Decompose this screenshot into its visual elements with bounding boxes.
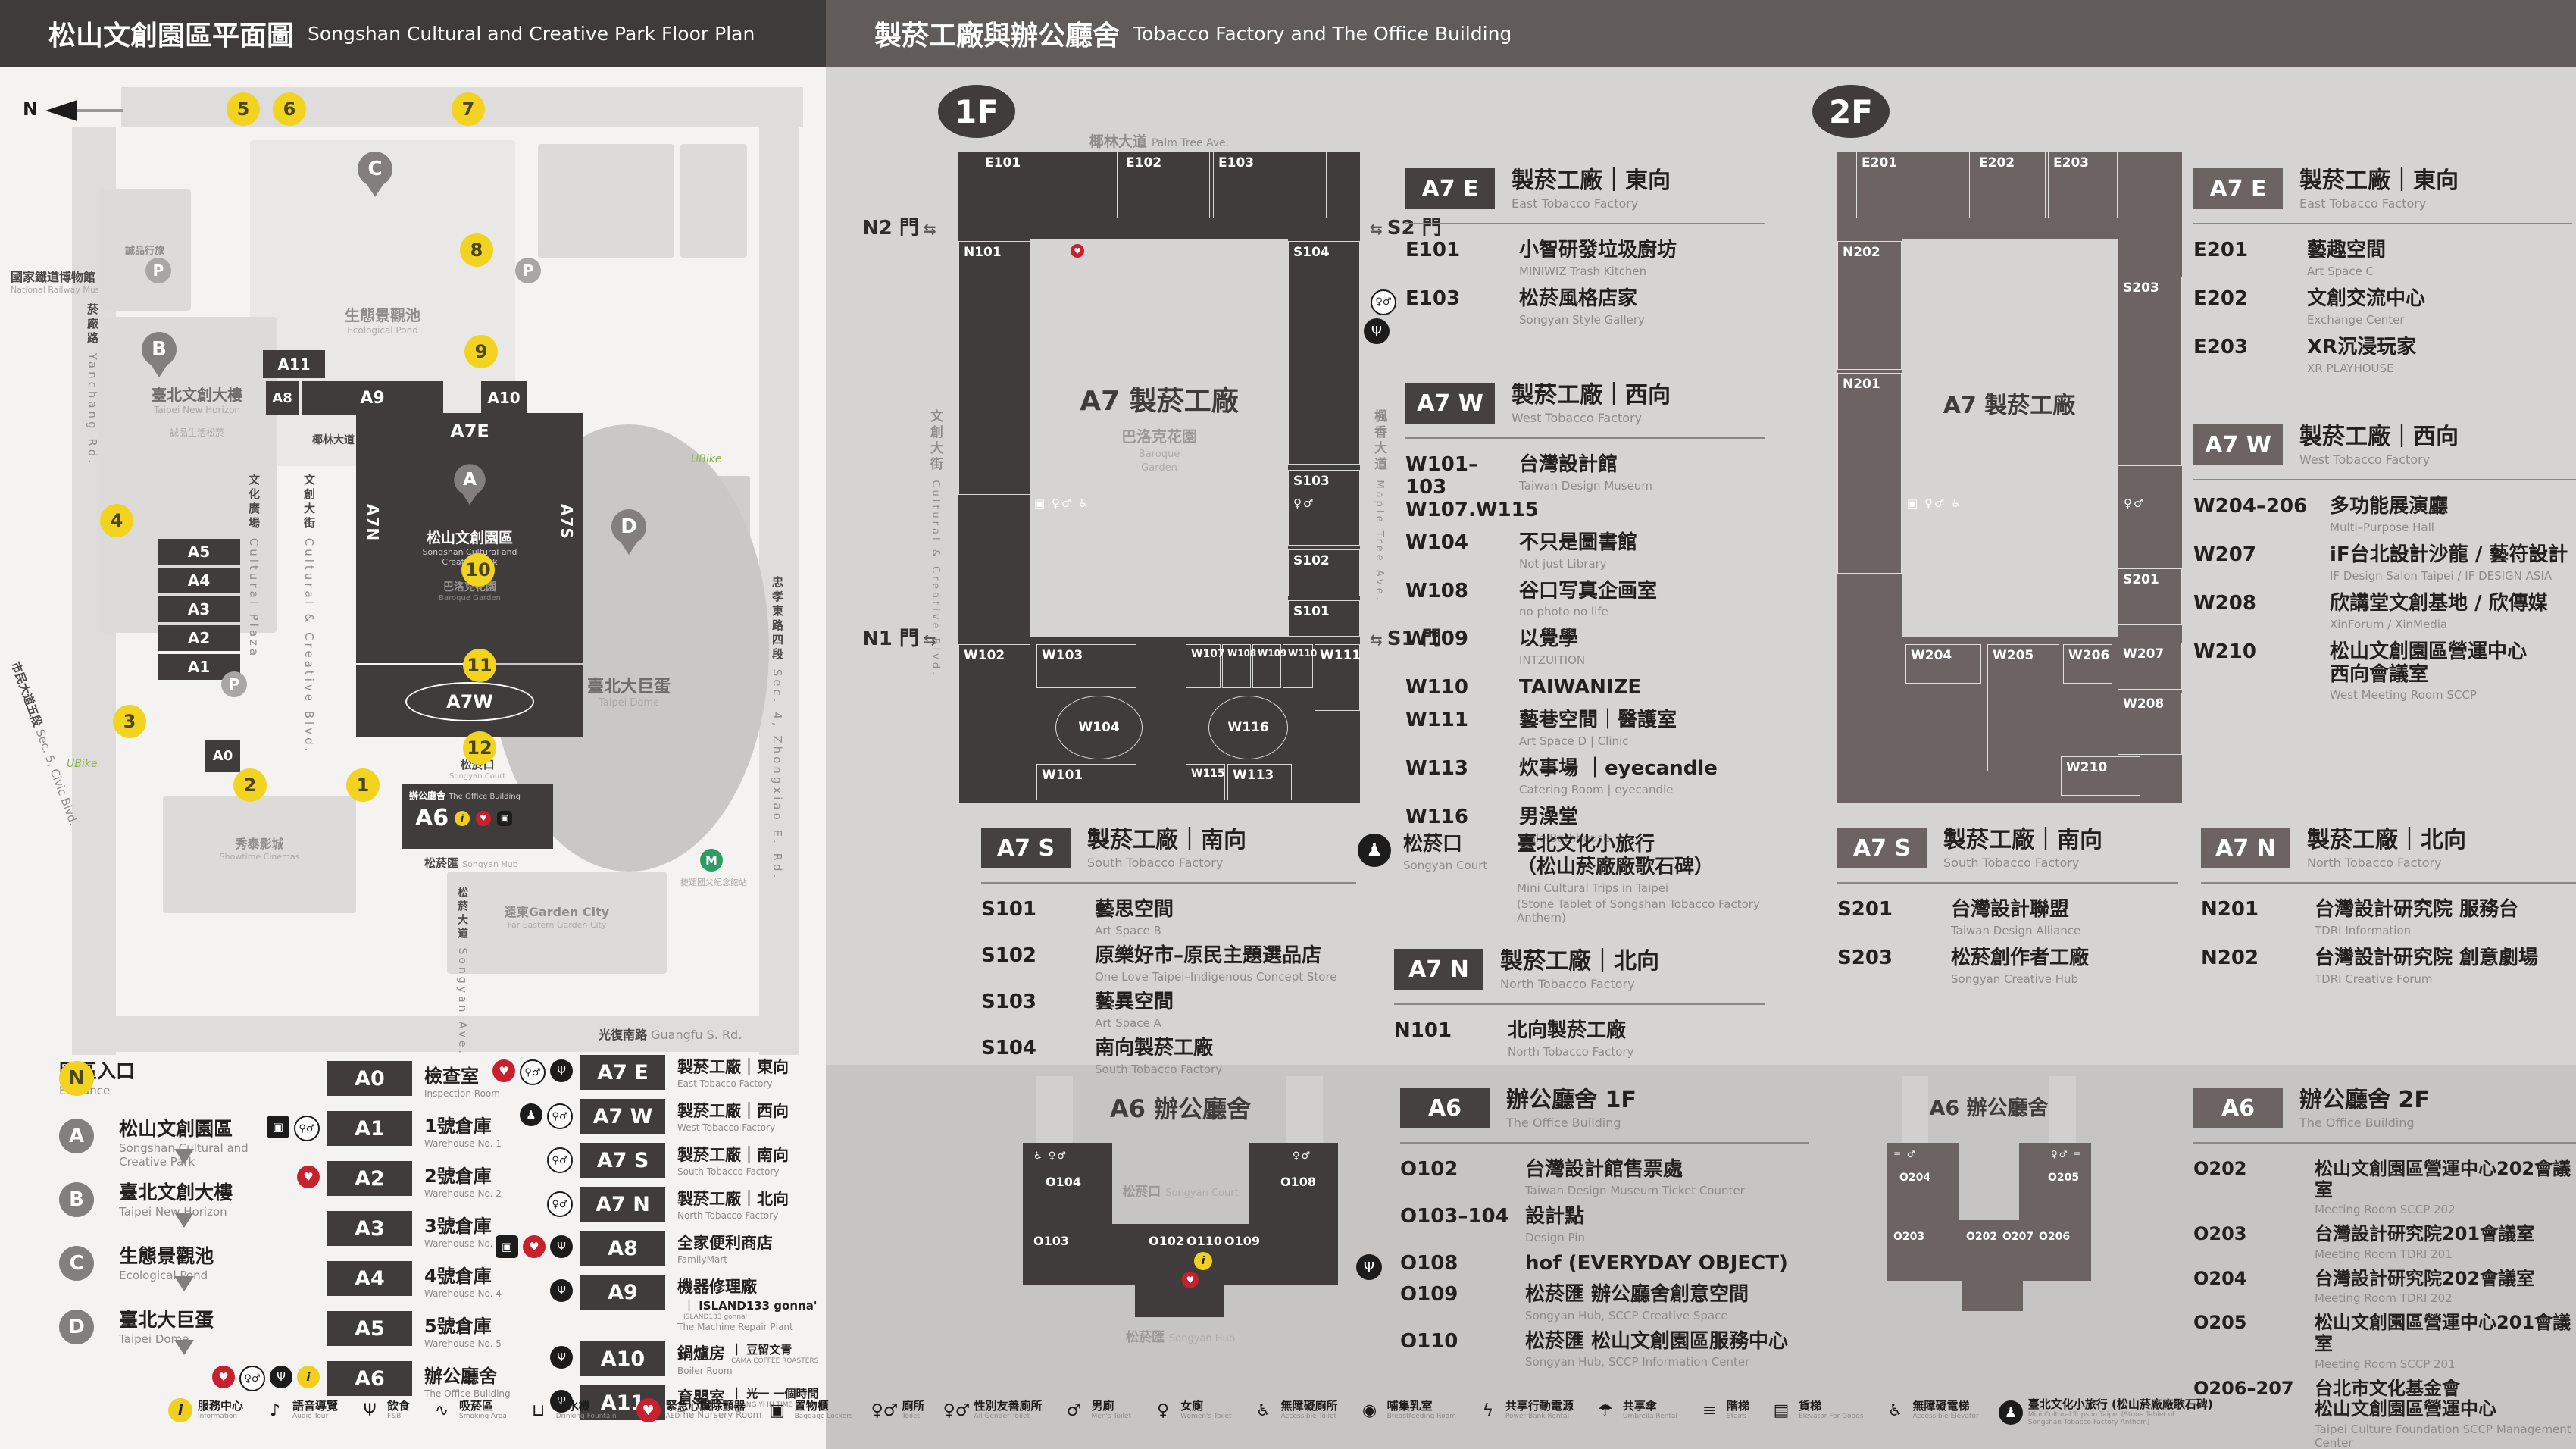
facility-icon: ϟ <box>1476 1398 1500 1422</box>
room-o103: O103 <box>1033 1234 1069 1248</box>
legend-factory-col: ♥♀♂Ψ A7 E 製菸工廠｜東向 East Tobacco Factory ♟… <box>580 1055 826 1429</box>
info-icon: i <box>1194 1252 1212 1270</box>
section-code-badge: A7 E <box>2193 168 2283 209</box>
divider <box>2201 882 2576 884</box>
room-o207: O207 <box>2002 1231 2034 1243</box>
legend-place-row: D 臺北大巨蛋 Taipei Dome <box>59 1310 309 1373</box>
songyan-court-map-label: 松菸口 Songyan Court <box>1122 1181 1238 1200</box>
room-o206: O206 <box>2039 1231 2070 1243</box>
list-item: E101 小智研發垃圾廚坊MINIWIZ Trash Kitchen <box>1405 239 1765 278</box>
room-list: O202 松山文創園區營運中心202會議室Meeting Room SCCP 2… <box>2193 1159 2576 1449</box>
toilet-icon: ♀♂ <box>2124 496 2145 510</box>
accelev-icon: ♿ <box>1884 1398 1908 1422</box>
map-entrance-8: 8 <box>460 233 493 267</box>
facility-legend-item: ♥ 緊急心臟除顫器AED <box>636 1398 746 1422</box>
facility-icon: ▤ <box>1769 1398 1793 1422</box>
person-icon: ♟ <box>520 1103 542 1126</box>
floor-1f-badge: 1F <box>938 85 1015 138</box>
map-building-a9: A9 <box>302 381 443 415</box>
map-a7s-label: A7S <box>558 504 576 540</box>
facility-icons: Ψ <box>550 1279 573 1302</box>
toilet-icon: ▣ ♀♂ ♿ <box>1907 496 1963 510</box>
facility-icons: ♥♀♂Ψ <box>492 1059 573 1085</box>
garden-city-block: 遠東Garden City Far Eastern Garden City <box>447 872 667 974</box>
stairs-icon: ≡ ♂ <box>1893 1149 1917 1160</box>
facility-legend-item: ♀ 女廁Women's Toilet <box>1151 1398 1231 1422</box>
legend-building-row: ♥ A2 2號倉庫 Warehouse No. 2 <box>327 1161 577 1199</box>
building-code-badge: A0 <box>327 1061 412 1096</box>
toilet-icon: ♀♂ <box>547 1147 573 1173</box>
facility-legend-item: ♿ 無障礙電梯Accessible Elevator <box>1884 1398 1979 1422</box>
map-entrance-11: 11 <box>463 649 496 682</box>
aed-icon: ♥ <box>297 1166 320 1188</box>
room-s203: S203 <box>2118 277 2182 466</box>
list-item: W207 iF台北設計沙龍 / 藝符設計IF Design Salon Taip… <box>2193 544 2576 583</box>
facility-legend-item: ☂ 共享傘Umbrella Rental <box>1593 1398 1677 1422</box>
aed-icon: ♥ <box>476 811 491 826</box>
facility-icon: i <box>168 1398 192 1422</box>
map-pin-c: C <box>358 152 392 186</box>
list-item: O103–104 設計點Design Pin <box>1400 1206 1809 1244</box>
room-o205: O205 <box>2048 1172 2079 1184</box>
food-icon: Ψ <box>1356 1254 1382 1280</box>
section-code-badge: A7 N <box>2201 828 2290 868</box>
info-icon: i <box>297 1366 320 1388</box>
food-icon: Ψ <box>270 1366 292 1388</box>
list-item: S103 藝異空間Art Space A <box>981 991 1356 1030</box>
food-icon: Ψ <box>1364 318 1390 344</box>
map-pin-b: B <box>142 332 177 367</box>
facility-icon: ♂ <box>1062 1398 1086 1422</box>
map-baroque-en: Baroque Garden <box>386 594 553 602</box>
divider <box>981 882 1356 884</box>
room-list: S201 台灣設計聯盟Taiwan Design Alliance S203 松… <box>1837 899 2178 986</box>
list-item: N201 台灣設計研究院 服務台TDRI Information <box>2201 899 2576 937</box>
map-a7e-label: A7E <box>356 421 583 442</box>
room-n101: N101 <box>958 241 1030 495</box>
section-code-badge: A6 <box>2193 1088 2283 1128</box>
a6-1f-title: A6 辦公廳舍 <box>1110 1090 1251 1125</box>
aed-icon: ♥ <box>1071 244 1084 258</box>
room-list: N201 台灣設計研究院 服務台TDRI Information N202 台灣… <box>2201 899 2576 986</box>
baroque-garden-en2: Garden <box>1141 462 1177 474</box>
facility-icon: ◉ <box>1358 1398 1382 1422</box>
map-building-a10: A10 <box>481 381 527 415</box>
room-list: N101 北向製菸工廠North Tobacco Factory <box>1394 1020 1765 1059</box>
section-2f-north: A7 N 製菸工廠｜北向North Tobacco Factory N201 台… <box>2201 828 2576 996</box>
facility-legend-item: ♂ 男廁Men's Toilet <box>1062 1398 1132 1422</box>
building-code-badge: A6 <box>327 1361 412 1396</box>
facility-legend-item: i 服務中心Information <box>168 1398 243 1422</box>
list-item: W204–206 多功能展演廳Multi–Purpose Hall <box>2193 496 2576 534</box>
facility-legend-item: ▣ 置物櫃Baggage Lockers <box>765 1398 853 1422</box>
food-icon: Ψ <box>550 1059 573 1082</box>
powerbank-icon: ϟ <box>1476 1398 1500 1422</box>
list-item: S203 松菸創作者工廠Songyan Creative Hub <box>1837 947 2178 986</box>
left-panel-header: 松山文創園區平面圖 Songshan Cultural and Creative… <box>0 0 826 67</box>
facility-icon: ▣ <box>765 1398 789 1422</box>
list-item: O202 松山文創園區營運中心202會議室Meeting Room SCCP 2… <box>2193 1159 2576 1216</box>
mrt-station-label: 捷運國父紀念館站 <box>661 876 767 888</box>
section-code-badge: A7 E <box>1405 168 1495 209</box>
room-w101: W101 <box>1036 764 1136 800</box>
list-item: S101 藝思空間Art Space B <box>981 899 1356 937</box>
gov-building-1 <box>538 144 674 258</box>
garden-city-label-zh: 遠東Garden City <box>447 902 667 920</box>
facility-icon: ☂ <box>1593 1398 1618 1422</box>
legend-factory-row: ♟♀♂ A7 W 製菸工廠｜西向 West Tobacco Factory <box>580 1099 826 1134</box>
room-w109: W109 <box>1252 644 1281 688</box>
map-building-a11: A11 <box>263 350 325 378</box>
room-e201: E201 <box>1856 152 1970 218</box>
list-item: W101–103W107.W115 台灣設計館Taiwan Design Mus… <box>1405 454 1765 522</box>
section-code-badge: A7 W <box>2193 424 2283 465</box>
room-o108: O108 <box>1280 1175 1316 1189</box>
list-item: N101 北向製菸工廠North Tobacco Factory <box>1394 1020 1765 1059</box>
room-list: W101–103W107.W115 台灣設計館Taiwan Design Mus… <box>1405 454 1765 845</box>
a6-2f-title: A6 辦公廳舍 <box>1929 1091 2048 1121</box>
floor-2f-badge: 2F <box>1812 85 1890 138</box>
map-building-a7: A7E A7N A7S 松山文創園區 Songshan Cultural and… <box>356 413 583 663</box>
list-item: W109 以覺學INTZUITION <box>1405 628 1765 667</box>
facility-legend-item: ♀♂ 廁所Toilet <box>873 1398 925 1422</box>
aed-icon: ♥ <box>523 1235 546 1258</box>
aed-icon: ♥ <box>636 1398 661 1422</box>
building-code-badge: A2 <box>327 1161 412 1196</box>
room-e203: E203 <box>2048 152 2118 218</box>
list-item: O102 台灣設計館售票處Taiwan Design Museum Ticket… <box>1400 1159 1809 1197</box>
lockers-icon: ▣ <box>497 811 512 826</box>
lockers-icon: ▣ <box>496 1235 518 1258</box>
facility-icons: ♀♂ <box>547 1147 573 1173</box>
list-item: W110 TAIWANIZE <box>1405 677 1765 699</box>
toilet-icon: ♀♂ <box>1371 289 1396 315</box>
goodselev-icon: ▤ <box>1769 1398 1793 1422</box>
room-o110: O110 <box>1186 1234 1222 1248</box>
info-icon: i <box>168 1398 192 1422</box>
facility-icon: ♪ <box>263 1398 287 1422</box>
list-item: W210 松山文創園區營運中心西向會議室West Meeting Room SC… <box>2193 641 2576 703</box>
facility-icons: ♀♂ <box>1371 289 1396 315</box>
room-w103: W103 <box>1036 644 1136 688</box>
new-horizon-label: 臺北文創大樓 Taipei New Horizon 誠品生活松菸 <box>136 383 258 439</box>
toilet-icon: ▣ ♀♂ ♿ <box>1034 496 1090 510</box>
section-1f-south: A7 S 製菸工廠｜南向South Tobacco Factory S101 藝… <box>981 828 1356 1084</box>
facility-legend-item: ◉ 哺集乳室Breastfeeding Room <box>1358 1398 1456 1422</box>
room-e101: E101 <box>980 152 1118 218</box>
aed-icon: ♥ <box>1182 1272 1199 1288</box>
facility-icon: ♟ <box>1999 1400 2023 1425</box>
facility-legend-item: ⊔ 飲水機Drinking Fountain <box>527 1398 617 1422</box>
list-item: O109 松菸匯 辦公廳舍創意空間Songyan Hub, SCCP Creat… <box>1400 1284 1809 1322</box>
list-item: S102 原樂好市–原民主題選品店One Love Taipei–Indigen… <box>981 945 1356 984</box>
pond-label: 生態景觀池 Ecological Pond <box>345 303 420 336</box>
food-icon: Ψ <box>358 1398 382 1422</box>
map-building-a8: A8 <box>266 381 299 415</box>
divider <box>2193 479 2576 480</box>
right-panel-header: 製菸工廠與辦公廳舍 Tobacco Factory and The Office… <box>826 0 2576 67</box>
accessible-icon: ♿ ♀♂ <box>1033 1150 1068 1162</box>
room-o109: O109 <box>1224 1234 1260 1248</box>
map-entrance-7: 7 <box>452 92 485 126</box>
building-code-badge: A4 <box>327 1261 412 1296</box>
palm-ave-label-1f: 椰林大道 Palm Tree Ave. <box>1089 130 1229 151</box>
legend-factory-row: ♀♂ A7 S 製菸工廠｜南向 South Tobacco Factory <box>580 1143 826 1178</box>
room-w208: W208 <box>2118 693 2182 755</box>
smoking-icon: ∿ <box>430 1398 454 1422</box>
toilet-icon: ♀♂ <box>239 1366 265 1391</box>
legend-place-row: C 生態景觀池 Ecological Pond <box>59 1246 309 1310</box>
building-code-badge: A7 E <box>580 1055 665 1090</box>
map-entrance-10: 10 <box>461 553 495 587</box>
map-building-a6: 辦公廳舍 The Office Building A6 i ♥ ▣ <box>402 784 553 849</box>
songyan-court-note: ♟ 松菸口 Songyan Court 臺北文化小旅行 （松山菸廠廠歌石碑） M… <box>1358 834 1773 925</box>
showtime-label-en: Showtime Cinemas <box>163 852 356 862</box>
map-entrance-1: 1 <box>346 768 380 802</box>
toilet-icon: ♀♂ <box>547 1103 573 1129</box>
facility-legend-item: ϟ 共享行動電源Power Bank Rental <box>1476 1398 1574 1422</box>
stairs-icon: ≡ <box>1697 1398 1721 1422</box>
room-list: S101 藝思空間Art Space B S102 原樂好市–原民主題選品店On… <box>981 899 1356 1076</box>
room-e202: E202 <box>1974 152 2046 218</box>
toilet-icon: ♀♂ <box>547 1191 573 1217</box>
eslite-hotel-block: 誠品行旅 <box>98 189 191 311</box>
facility-icons: ♥♀♂Ψi <box>212 1366 320 1391</box>
section-code-badge: A7 N <box>1394 949 1483 990</box>
room-w107: W107 <box>1186 644 1221 688</box>
umbrella-icon: ☂ <box>1593 1398 1618 1422</box>
list-item: O110 松菸匯 松山文創園區服務中心Songyan Hub, SCCP Inf… <box>1400 1331 1809 1369</box>
room-w205: W205 <box>1987 644 2059 771</box>
section-a6-1f: A6 辦公廳舍 1FThe Office Building O102 台灣設計館… <box>1400 1088 1809 1377</box>
facility-icon: ∿ <box>430 1398 454 1422</box>
building-code-badge: A1 <box>327 1111 412 1146</box>
map-building-a3: A3 <box>158 596 240 622</box>
room-w111: W111 <box>1315 644 1360 711</box>
place-pin-icon: B <box>59 1182 94 1217</box>
map-office-en: The Office Building <box>449 793 521 801</box>
plan-2f-title: A7 製菸工廠 <box>1943 387 2076 420</box>
legend-factory-row: ▣♥Ψ A8 全家便利商店 FamilyMart <box>580 1231 826 1266</box>
facility-icon: ♥ <box>636 1398 661 1422</box>
room-w204: W204 <box>1905 644 1981 684</box>
legend-building-row: A5 5號倉庫 Warehouse No. 5 <box>327 1311 577 1349</box>
place-pin-icon: D <box>59 1310 94 1344</box>
list-item: E202 文創交流中心Exchange Center <box>2193 288 2572 327</box>
room-w108: W108 <box>1222 644 1251 688</box>
facility-legend-item: ▤ 貨梯Elevator For Goods <box>1769 1398 1863 1422</box>
facility-icon: ♿ <box>1884 1398 1908 1422</box>
list-item: O203 台灣設計研究院201會議室Meeting Room TDRI 201 <box>2193 1224 2576 1261</box>
place-pin-icon: A <box>59 1119 94 1153</box>
facility-icon: ♿ <box>1252 1398 1276 1422</box>
a6-plan-2f: A6 辦公廳舍 O204 O203 O202 O207 O206 O205 ≡ … <box>1860 1076 2118 1357</box>
list-item: E201 藝趣空間Art Space C <box>2193 239 2572 278</box>
facility-icon: Ψ <box>358 1398 382 1422</box>
room-w210: W210 <box>2061 756 2140 796</box>
room-list: E101 小智研發垃圾廚坊MINIWIZ Trash Kitchen ♀♂ E1… <box>1405 239 1765 327</box>
building-code-badge: A3 <box>327 1211 412 1246</box>
a6-plan-1f: A6 辦公廳舍 松菸口 Songyan Court O104 O103 O102… <box>983 1076 1377 1357</box>
map-entrance-4: 4 <box>100 504 133 537</box>
room-e102: E102 <box>1121 152 1210 218</box>
walking-person-icon: ♟ <box>1358 834 1391 867</box>
gate-n1: N1 門⇆ <box>862 623 941 651</box>
divider <box>2193 1142 2576 1144</box>
map-a7w-label: A7W <box>405 682 534 721</box>
divider <box>1405 223 1765 224</box>
map-pin-d: D <box>611 509 646 544</box>
a6-2f-stem <box>1962 1279 2023 1311</box>
room-s201: S201 <box>2118 568 2182 625</box>
divider <box>1400 1142 1809 1144</box>
room-w207: W207 <box>2118 643 2182 690</box>
parking-icon: P <box>145 258 171 283</box>
section-1f-north: A7 N 製菸工廠｜北向North Tobacco Factory N101 北… <box>1394 949 1765 1069</box>
map-building-a4: A4 <box>158 568 240 593</box>
room-o202: O202 <box>1966 1231 1997 1243</box>
road-label-guangfu: 光復南路 Guangfu S. Rd. <box>599 1025 742 1043</box>
legend-places: A 松山文創園區 Songshan Cultural and Creative … <box>59 1119 309 1373</box>
place-pin-icon: C <box>59 1246 94 1281</box>
taipei-dome-label: 臺北大巨蛋 Taipei Dome <box>587 673 671 709</box>
toilet-icon: ♀♂ <box>520 1059 546 1085</box>
map-entrance-9: 9 <box>464 335 498 368</box>
section-code-badge: A7 W <box>1405 383 1495 424</box>
map-office-zh: 辦公廳舍 <box>409 790 445 801</box>
room-list: O102 台灣設計館售票處Taiwan Design Museum Ticket… <box>1400 1159 1809 1369</box>
acctoilet-icon: ♿ <box>1252 1398 1276 1422</box>
facility-icons: ▣♀♂ <box>267 1116 320 1141</box>
section-code-badge: A6 <box>1400 1088 1490 1128</box>
cultural-plaza-label: 文化廣場 Cultural Plaza <box>246 474 262 659</box>
facility-icons: ♥ <box>297 1166 320 1188</box>
cultural-blvd-label: 文創大街 Cultural & Creative Blvd. <box>302 474 317 754</box>
room-n201: N201 <box>1837 373 1902 574</box>
map-building-a5: A5 <box>158 539 240 565</box>
building-code-badge: A7 W <box>580 1099 665 1134</box>
parking-icon: P <box>221 671 247 697</box>
floor-plan-2f: A7 製菸工廠 E201 E202 E203 N202 N201 S203 S2… <box>1837 152 2182 803</box>
legend-place-row: B 臺北文創大樓 Taipei New Horizon <box>59 1182 309 1246</box>
facility-icons: ▣♥Ψ <box>496 1235 573 1258</box>
aed-icon: ♥ <box>212 1366 235 1388</box>
section-1f-west: A7 W 製菸工廠｜西向West Tobacco Factory W101–10… <box>1405 383 1765 855</box>
room-w110: W110 <box>1283 644 1313 688</box>
facility-legend-item: ♪ 語音導覽Audio Tour <box>263 1398 338 1422</box>
legend-building-row: A4 4號倉庫 Warehouse No. 4 <box>327 1261 577 1299</box>
left-title-en: Songshan Cultural and Creative Park Floo… <box>308 23 755 45</box>
legend-entrance-row: N 園區入口Entrance <box>59 1061 135 1097</box>
building-code-badge: A7 S <box>580 1143 665 1178</box>
men-icon: ♂ <box>1062 1398 1086 1422</box>
food-icon: Ψ <box>550 1279 573 1302</box>
list-item: N202 台灣設計研究院 創意劇場TDRI Creative Forum <box>2201 947 2576 986</box>
ubike-icon: UBike <box>67 758 97 770</box>
list-item: W208 欣講堂文創基地 / 欣傳媒XinForum / XinMedia <box>2193 593 2576 631</box>
section-code-badge: A7 S <box>1837 828 1927 868</box>
list-item: W108 谷口写真企画室no photo no life <box>1405 581 1765 619</box>
a6-1f-stem <box>1135 1283 1224 1317</box>
legend-factory-row: Ψ A9 機器修理廠｜ ISLAND133 gonna'ISLAND133 go… <box>580 1275 826 1332</box>
a6-1f-main <box>1023 1224 1338 1285</box>
food-icon: Ψ <box>550 1235 573 1258</box>
divider <box>1837 882 2178 884</box>
room-s101: S101 <box>1288 600 1360 637</box>
toilet-icon: ♀♂ <box>873 1398 897 1422</box>
list-item: O108 hof (EVERYDAY OBJECT) <box>1400 1253 1809 1275</box>
room-w113: W113 <box>1227 764 1292 800</box>
baroque-garden-en1: Baroque <box>1139 449 1180 460</box>
list-item: O206–207 台北市文化基金會松山文創園區營運中心Taipei Cultur… <box>2193 1379 2576 1449</box>
road-label-zhongxiao: 忠孝東路四段 Sec. 4, Zhongxiao E. Rd. <box>770 576 786 881</box>
section-2f-east: A7 E 製菸工廠｜東向East Tobacco Factory E201 藝趣… <box>2193 168 2572 385</box>
facility-legend-item: ♀♂ 性別友善廁所All Gender Toilet <box>945 1398 1043 1422</box>
songyan-hub-map-label: 松菸匯 Songyan Hub <box>1126 1326 1235 1345</box>
list-item: E203 XR沉浸玩家XR PLAYHOUSE <box>2193 336 2572 375</box>
food-icon: Ψ <box>550 1346 573 1369</box>
room-o204: O204 <box>1899 1172 1930 1184</box>
baroque-garden-zh: 巴洛克花園 <box>1121 424 1197 446</box>
map-a7n-label: A7N <box>364 504 382 541</box>
room-o203: O203 <box>1893 1231 1924 1243</box>
parking-icon: P <box>515 258 541 283</box>
facility-icons: ♟♀♂ <box>520 1103 573 1129</box>
legend-building-row: ♥♀♂Ψi A6 辦公廳舍 The Office Building <box>327 1361 577 1399</box>
facility-icon: ♀ <box>1151 1398 1175 1422</box>
map-park-label-zh: 松山文創園區 <box>386 527 553 547</box>
toilet-icon: ♀♂ ≡ <box>2051 1149 2082 1160</box>
list-item: S201 台灣設計聯盟Taiwan Design Alliance <box>1837 899 2178 937</box>
list-item: W111 藝巷空間｜醫護室Art Space D | Clinic <box>1405 709 1765 748</box>
right-title-en: Tobacco Factory and The Office Building <box>1133 23 1512 45</box>
lockers-icon: ▣ <box>765 1398 789 1422</box>
entrance-circle-icon: N <box>59 1061 94 1096</box>
garden-city-label-en: Far Eastern Garden City <box>447 920 667 930</box>
room-o102: O102 <box>1149 1234 1184 1248</box>
legend-factory-row: Ψ A10 鍋爐房｜ 豆留文青CAMA COFFEE ROASTERS Boil… <box>580 1341 826 1376</box>
section-code-badge: A7 S <box>981 828 1071 868</box>
room-n202: N202 <box>1837 241 1902 370</box>
facility-legend-item: ∿ 吸菸區Smoking Area <box>430 1398 507 1422</box>
north-arrow-icon <box>45 100 77 121</box>
audio-icon: ♪ <box>263 1398 287 1422</box>
building-code-badge: A7 N <box>580 1187 665 1222</box>
toilet-icon: ♀♂ <box>1293 1150 1311 1162</box>
list-item: O205 松山文創園區營運中心201會議室Meeting Room SCCP 2… <box>2193 1313 2576 1370</box>
facility-icon: ♀♂ <box>945 1398 969 1422</box>
room-e103: E103 <box>1213 152 1327 218</box>
mrt-logo-icon: M <box>700 849 723 872</box>
facility-legend-item: ♟ 臺北文化小旅行 (松山菸廠廠歌石碑)Mini Cultural Trips … <box>1999 1398 2213 1427</box>
facility-icon: ⊔ <box>527 1398 551 1422</box>
right-title-zh: 製菸工廠與辦公廳舍 <box>874 14 1120 53</box>
map-entrance-2: 2 <box>233 768 267 802</box>
courtyard-2f <box>1902 239 2118 637</box>
map-entrance-3: 3 <box>113 705 146 738</box>
facility-icons: ♀♂ <box>547 1191 573 1217</box>
facility-legend-strip: i 服務中心Information ♪ 語音導覽Audio Tour Ψ 飲食F… <box>168 1398 1683 1427</box>
showtime-label-zh: 秀泰影城 <box>163 834 356 852</box>
room-w115: W115 <box>1186 764 1225 800</box>
divider <box>1405 437 1765 439</box>
section-a6-2f: A6 辦公廳舍 2FThe Office Building O202 松山文創園… <box>2193 1088 2576 1449</box>
map-pin-a: A <box>454 464 485 495</box>
building-code-badge: A9 <box>580 1275 665 1310</box>
songyan-ave-label: 松菸大道 Songyan Ave. <box>455 887 470 1056</box>
gov-building-2 <box>680 144 747 258</box>
room-w104: W104 <box>1055 696 1143 759</box>
